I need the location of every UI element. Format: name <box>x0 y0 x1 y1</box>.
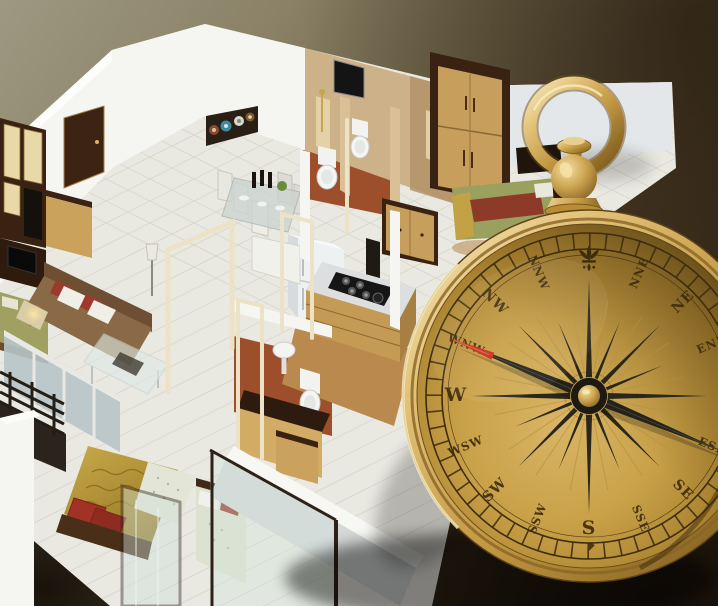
compass-hub <box>571 378 608 415</box>
wardrobe-tall <box>430 52 510 204</box>
compass-label-s: S <box>582 517 597 539</box>
door-knob <box>95 140 99 144</box>
glass-partition <box>122 486 180 606</box>
table-plant <box>277 181 287 191</box>
mirror <box>24 188 42 240</box>
vastu-floorplan-compass-image: NNE NE ENE E ESE SE SSE S SSW SW WSW W W… <box>0 0 718 606</box>
lamp-glow <box>24 304 44 324</box>
